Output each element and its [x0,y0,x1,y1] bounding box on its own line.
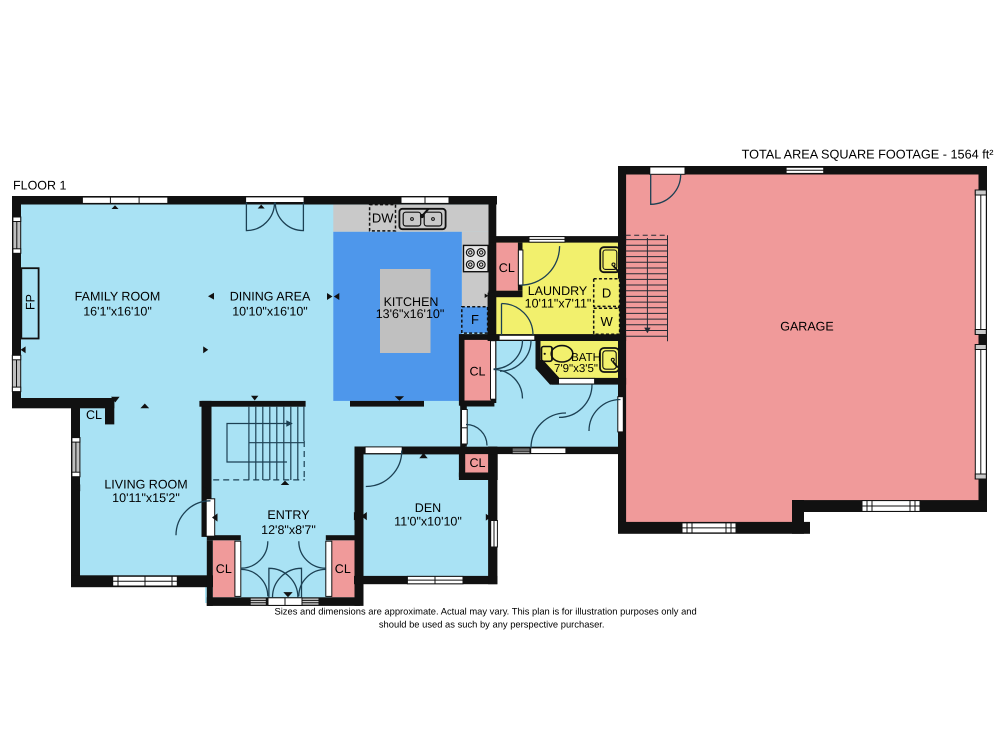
svg-text:10'10"x16'10": 10'10"x16'10" [232,305,308,319]
svg-text:TOTAL AREA SQUARE FOOTAGE - 15: TOTAL AREA SQUARE FOOTAGE - 1564 ft² [742,148,994,162]
svg-text:D: D [602,286,611,301]
svg-text:GARAGE: GARAGE [780,320,834,334]
svg-text:DEN: DEN [415,501,441,515]
svg-text:CL: CL [499,261,515,275]
svg-text:16'1"x16'10": 16'1"x16'10" [83,305,152,319]
svg-text:CL: CL [86,408,102,422]
svg-text:LIVING ROOM: LIVING ROOM [104,478,187,492]
svg-text:10'11"x15'2": 10'11"x15'2" [112,491,180,505]
svg-text:7'9"x3'5": 7'9"x3'5" [554,363,598,375]
svg-text:13'6"x16'10": 13'6"x16'10" [376,307,445,321]
svg-text:CL: CL [335,562,351,576]
svg-text:W: W [600,314,613,329]
svg-text:DINING AREA: DINING AREA [230,290,311,304]
svg-text:10'11"x7'11": 10'11"x7'11" [525,297,592,311]
svg-text:FLOOR 1: FLOOR 1 [13,179,67,193]
svg-text:11'0"x10'10": 11'0"x10'10" [394,515,462,529]
svg-text:CL: CL [470,365,486,379]
svg-text:FAMILY ROOM: FAMILY ROOM [75,290,161,304]
svg-text:should be used as such by any: should be used as such by any perspectiv… [379,619,605,630]
svg-text:DW: DW [372,211,394,226]
svg-text:FP: FP [24,294,38,310]
svg-text:Sizes and dimensions are appro: Sizes and dimensions are approximate. Ac… [274,606,696,617]
svg-text:CL: CL [216,562,232,576]
svg-text:F: F [471,312,479,327]
svg-text:CL: CL [470,456,486,470]
svg-text:12'8"x8'7": 12'8"x8'7" [261,523,316,537]
svg-text:ENTRY: ENTRY [267,508,310,522]
